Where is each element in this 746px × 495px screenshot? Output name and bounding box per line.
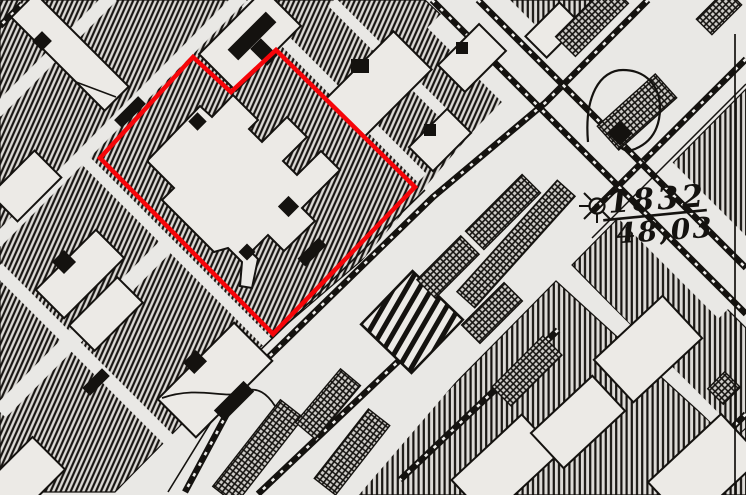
map-viewport[interactable]: 1832 48,03 [0, 0, 746, 495]
building [424, 124, 436, 136]
building [456, 42, 468, 54]
benchmark-labels: 1832 48,03 [601, 178, 715, 251]
city-map-svg[interactable]: 1832 48,03 [0, 0, 746, 495]
building [351, 59, 369, 73]
elevation-label: 48,03 [615, 211, 715, 251]
